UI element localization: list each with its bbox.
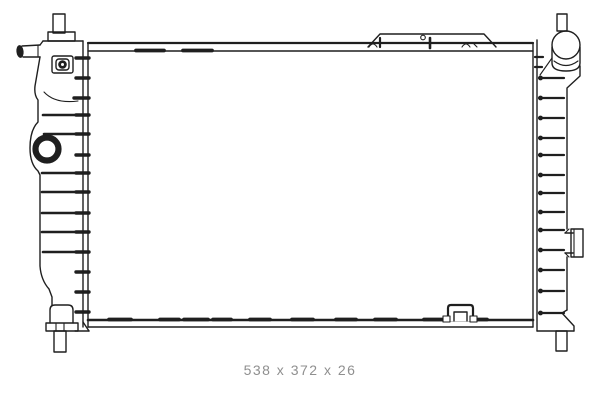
inlet-pipe xyxy=(16,45,40,58)
left-crimp-tabs xyxy=(74,58,89,312)
right-top-stub xyxy=(557,14,567,31)
left-tank xyxy=(16,14,89,352)
filler-neck-ring xyxy=(36,138,59,161)
top-mounting-bracket xyxy=(368,34,496,48)
left-mounting-pin xyxy=(54,331,66,352)
left-mounting-foot xyxy=(46,305,78,352)
radiator-core xyxy=(88,34,533,327)
pipe-tip-cap xyxy=(16,45,24,58)
bracket-hole xyxy=(421,35,426,40)
right-tank xyxy=(535,14,583,351)
product-image-canvas: 538 x 372 x 26 xyxy=(0,0,600,400)
drain-plug-boss xyxy=(52,56,73,73)
side-bracket xyxy=(565,229,583,257)
right-mounting-foot xyxy=(537,310,574,351)
right-mounting-pin xyxy=(556,331,567,351)
top-inlet-stub xyxy=(53,14,65,33)
bottom-mounting-bracket xyxy=(443,305,477,322)
dimension-label: 538 x 372 x 26 xyxy=(0,362,600,378)
filler-cylinder xyxy=(552,14,580,71)
right-tank-ribs xyxy=(538,76,564,316)
radiator-line-drawing xyxy=(0,0,600,400)
